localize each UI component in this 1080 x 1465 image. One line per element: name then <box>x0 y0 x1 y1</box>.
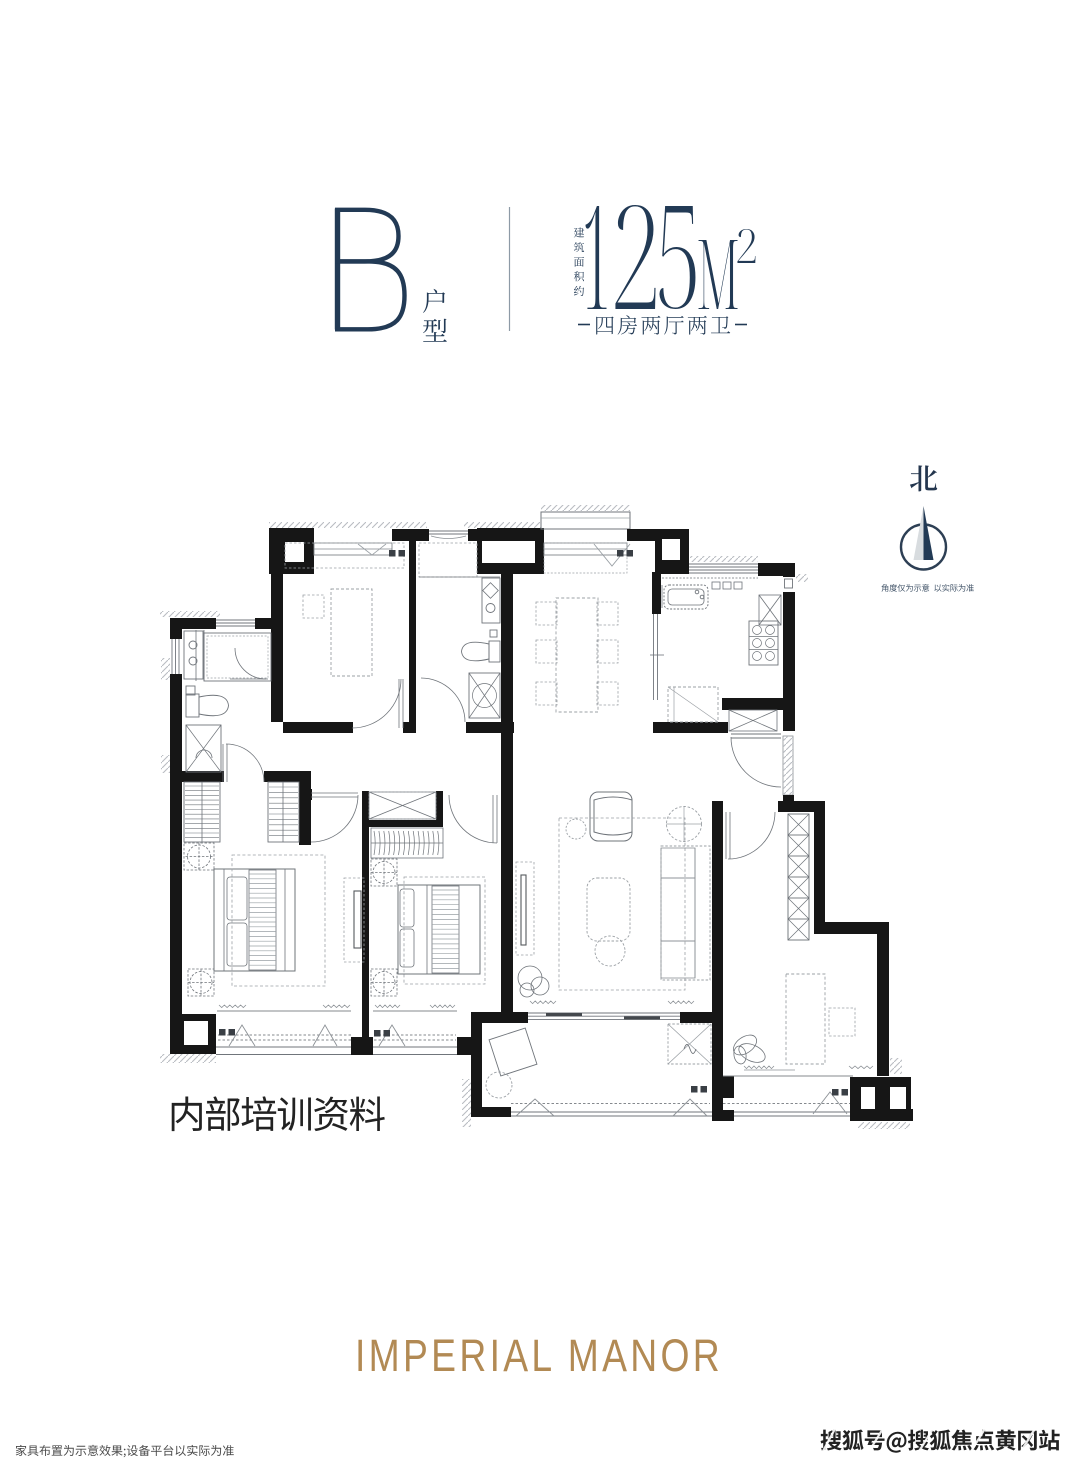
svg-text:IMPERIAL MANOR: IMPERIAL MANOR <box>355 1330 723 1381</box>
